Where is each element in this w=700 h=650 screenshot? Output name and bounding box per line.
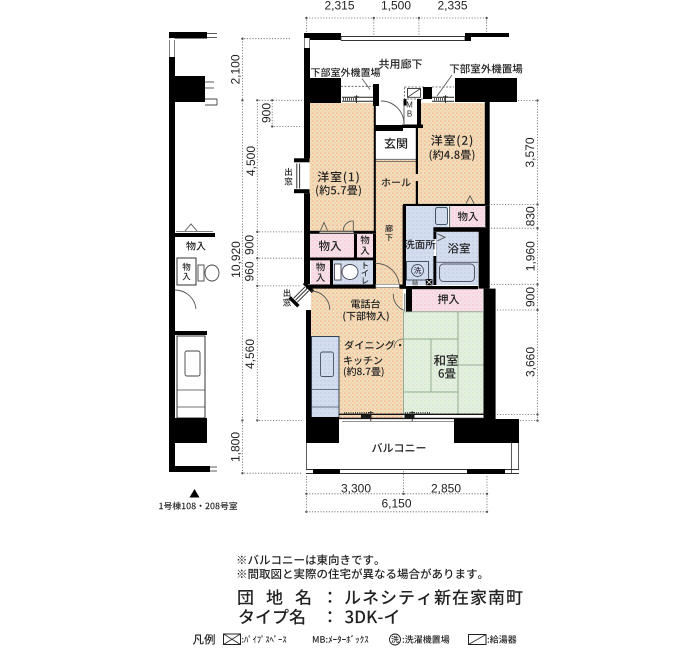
svg-text:960: 960: [243, 261, 257, 281]
svg-text:2,315: 2,315: [324, 0, 354, 13]
svg-text:1,960: 1,960: [524, 241, 538, 271]
svg-text:10,920: 10,920: [229, 241, 243, 278]
svg-text:3,660: 3,660: [524, 347, 538, 377]
svg-text:2,335: 2,335: [437, 0, 467, 13]
svg-text:3,300: 3,300: [341, 482, 371, 496]
svg-text:M: M: [406, 101, 413, 110]
svg-text:3,570: 3,570: [523, 137, 537, 167]
svg-text:900: 900: [243, 235, 257, 255]
svg-text:2,100: 2,100: [229, 54, 243, 84]
svg-text:4,500: 4,500: [244, 146, 258, 176]
svg-text:B: B: [407, 110, 412, 119]
svg-text:900: 900: [524, 287, 538, 307]
svg-text:6,150: 6,150: [381, 497, 411, 511]
svg-text:2,850: 2,850: [431, 482, 461, 496]
svg-text:1,800: 1,800: [229, 432, 243, 462]
svg-text:900: 900: [260, 103, 274, 123]
svg-text:830: 830: [524, 206, 538, 226]
svg-text:1,500: 1,500: [381, 0, 411, 13]
svg-text:4,560: 4,560: [243, 339, 257, 369]
